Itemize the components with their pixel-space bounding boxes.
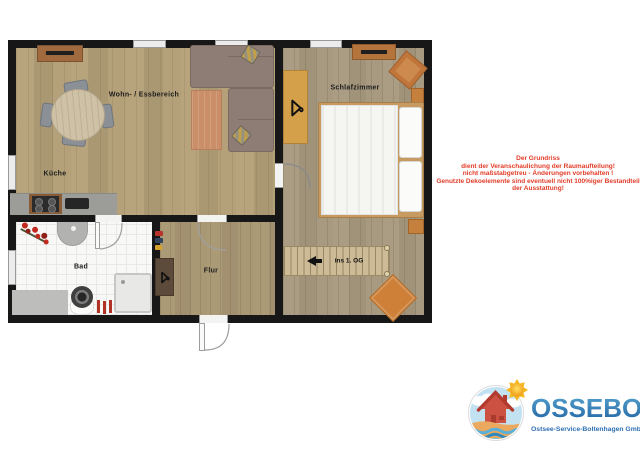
toilet	[71, 286, 93, 308]
bedroom-label: Schlafzimmer	[330, 85, 379, 92]
hall-shoes	[155, 238, 163, 243]
hall-shoes	[155, 245, 162, 250]
candle	[103, 301, 106, 314]
shower-drain	[121, 280, 125, 284]
hall-coat-mat	[155, 258, 174, 296]
hanger-icon	[285, 97, 307, 119]
hall-shoes	[155, 231, 163, 236]
kitchen-sink	[65, 198, 89, 209]
candle	[97, 300, 100, 313]
disclaimer-line: nicht maßstabgetreu - Änderungen vorbeha…	[434, 170, 640, 178]
stairs-label: ins 1. OG	[335, 258, 364, 265]
bed-bench	[408, 219, 424, 234]
kitchen-label: Küche	[44, 171, 67, 178]
bedroom-wardrobe	[283, 70, 308, 144]
bed-pillow	[399, 107, 422, 158]
disclaimer-text: Der Grundriss dient der Veranschaulichun…	[434, 155, 640, 193]
logo-wordmark: OSSEBO	[531, 393, 640, 423]
stove-cooktop	[32, 196, 59, 212]
living-room-label: Wohn- / Essbereich	[109, 92, 179, 99]
burner-icon	[35, 205, 43, 213]
sofa-cushion-line	[238, 119, 274, 120]
stair-post	[384, 245, 390, 251]
sink-faucet	[71, 226, 76, 231]
disclaimer-line: dient der Veranschaulichung der Raumauft…	[434, 163, 640, 171]
logo-emblem	[467, 377, 531, 445]
logo-subtitle: Ostsee-Service-Boltenhagen GmbH	[531, 426, 640, 433]
living-sideboard	[37, 45, 83, 62]
sofa-right-section	[228, 88, 274, 152]
hanger-icon	[157, 270, 172, 285]
disclaimer-line: Der Grundriss	[434, 155, 640, 163]
disclaimer-line: der Ausstattung!	[434, 185, 640, 193]
sideboard-handle	[46, 51, 74, 55]
bed-pillow	[399, 161, 422, 212]
burner-icon	[48, 205, 56, 213]
living-rug	[191, 90, 222, 150]
candle	[109, 300, 112, 313]
sofa-top-section	[190, 45, 274, 88]
bedroom-dresser	[352, 44, 396, 60]
bathroom-label: Bad	[74, 264, 88, 271]
armchair-seat	[395, 57, 420, 82]
stairs-arrow-bar	[311, 259, 322, 263]
dresser-handle	[361, 50, 387, 54]
bath-mat	[12, 290, 68, 315]
kitchen-counter	[10, 193, 117, 215]
logo-wordmark-svg: OSSEBO	[531, 389, 640, 425]
sun-icon	[506, 379, 528, 401]
dining-table	[51, 89, 105, 141]
bed-duvet	[321, 105, 398, 215]
disclaimer-line: Genutzte Dekoelemente sind eventuell nic…	[434, 178, 640, 186]
flower-bloom	[43, 239, 50, 246]
company-logo: OSSEBO Ostsee-Service-Boltenhagen GmbH	[465, 374, 640, 449]
shower-tray	[114, 273, 152, 313]
hallway-label: Flur	[204, 268, 218, 275]
